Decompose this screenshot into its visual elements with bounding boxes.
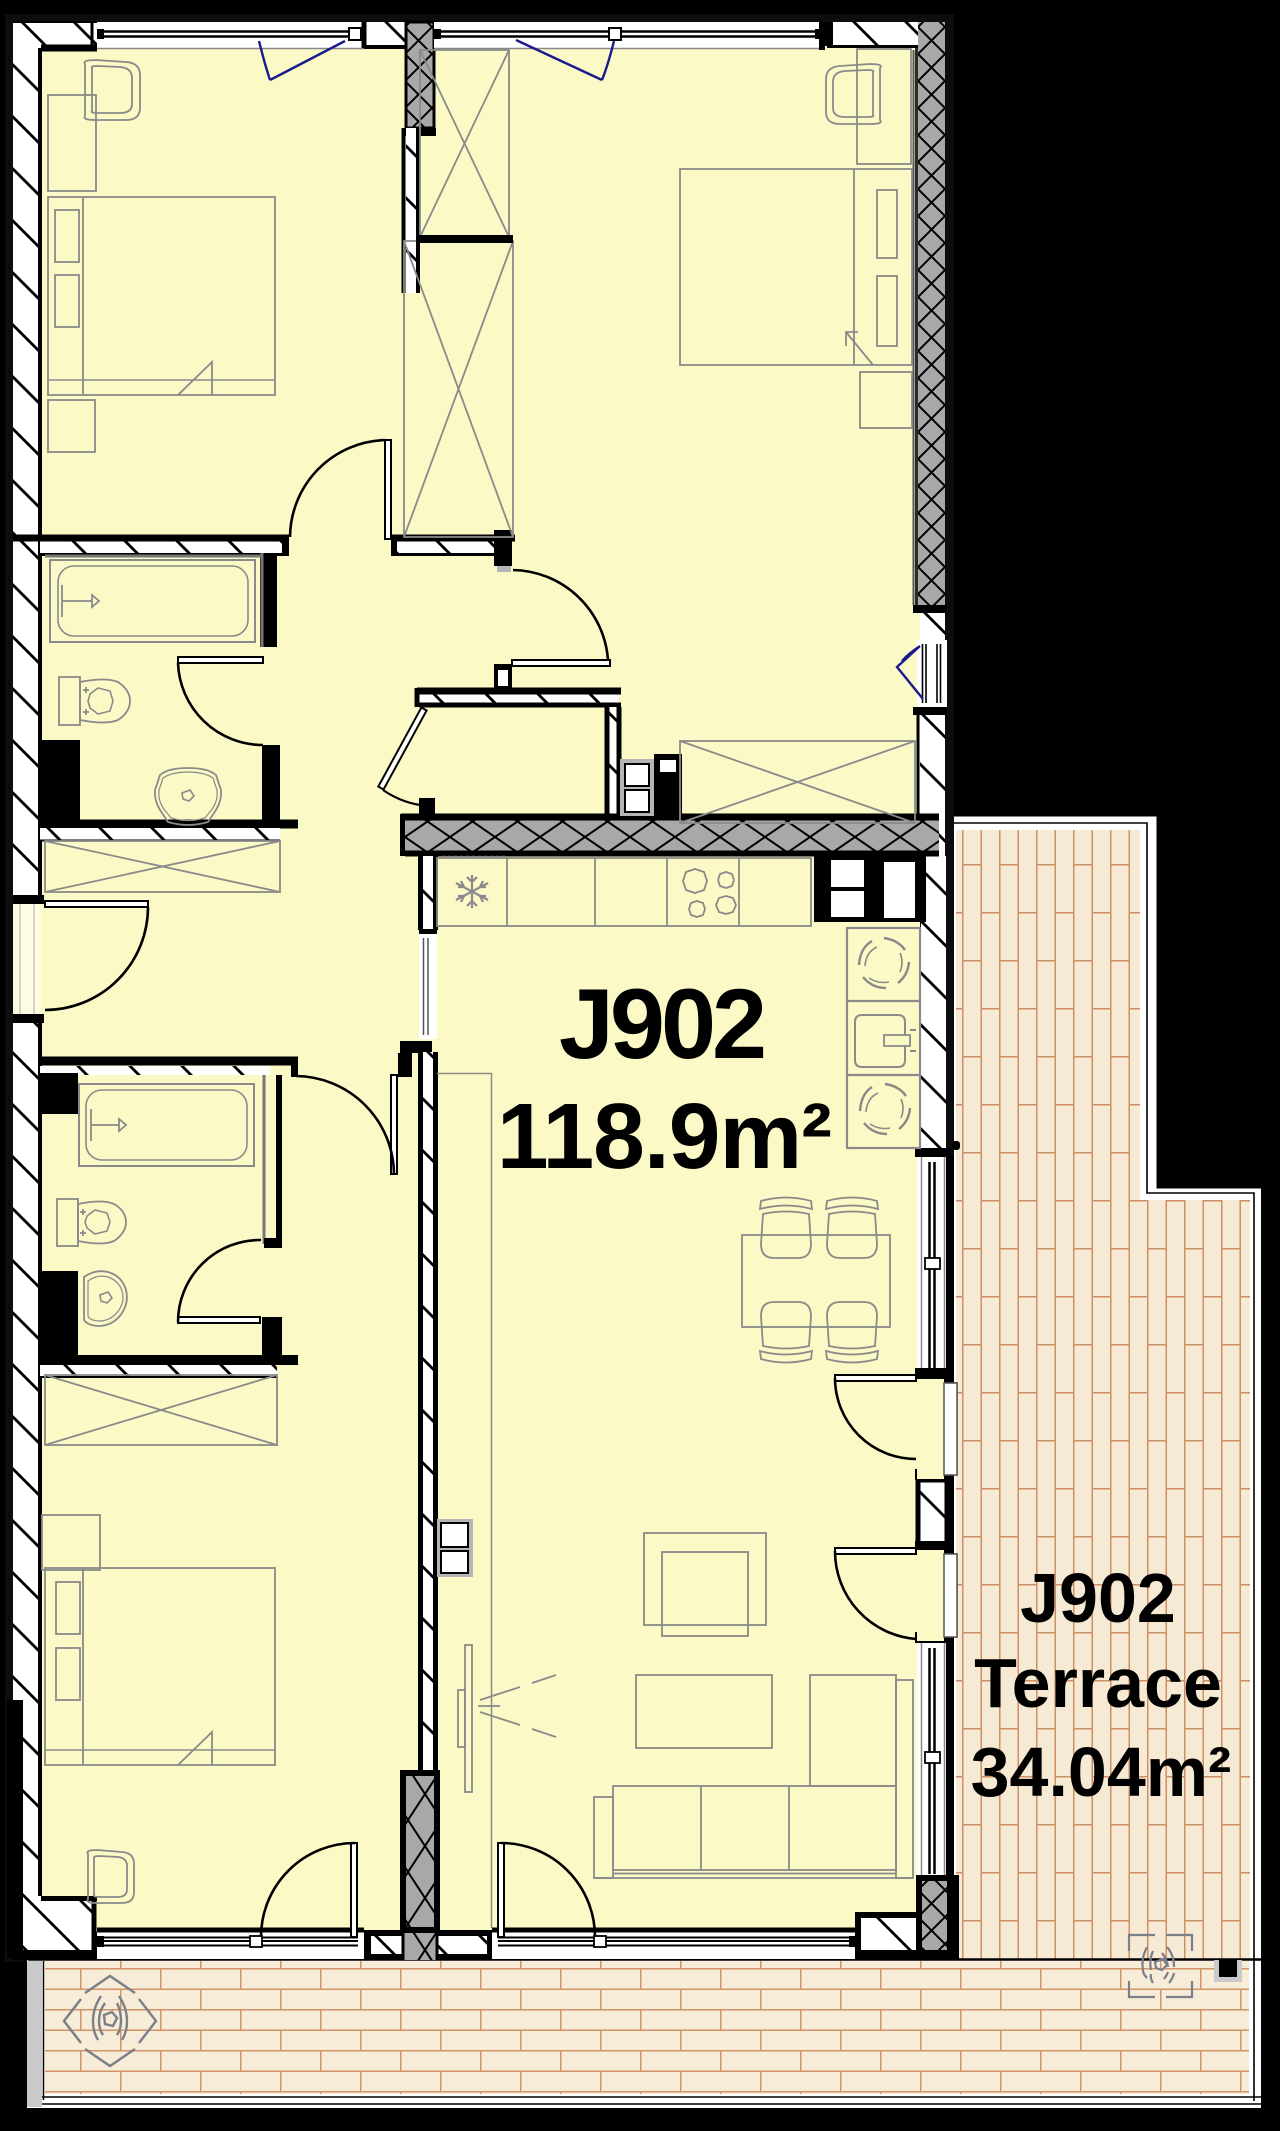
svg-text:118.9m²: 118.9m² xyxy=(497,1084,831,1188)
svg-text:34.04m²: 34.04m² xyxy=(971,1733,1232,1811)
svg-text:J902: J902 xyxy=(1020,1559,1176,1637)
svg-text:J902: J902 xyxy=(559,968,764,1079)
svg-text:Terrace: Terrace xyxy=(974,1644,1222,1722)
